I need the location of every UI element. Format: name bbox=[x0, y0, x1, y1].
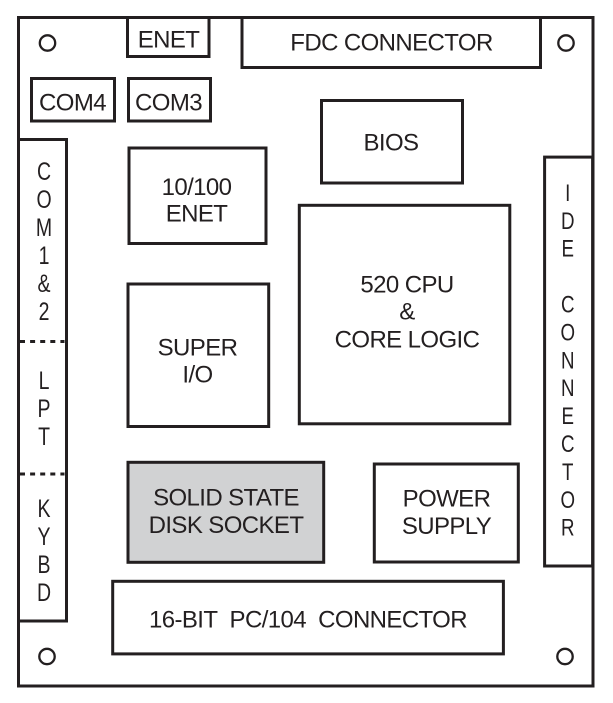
svg-text:&: & bbox=[38, 270, 51, 298]
svg-text:I/O: I/O bbox=[182, 362, 212, 389]
svg-text:DISK SOCKET: DISK SOCKET bbox=[149, 512, 305, 539]
svg-text:&: & bbox=[399, 299, 415, 326]
svg-text:SOLID STATE: SOLID STATE bbox=[153, 485, 299, 512]
svg-text:FDC CONNECTOR: FDC CONNECTOR bbox=[290, 30, 493, 57]
svg-text:N: N bbox=[561, 347, 574, 374]
svg-text:M: M bbox=[36, 214, 52, 242]
svg-text:2: 2 bbox=[39, 298, 49, 326]
svg-text:ENET: ENET bbox=[166, 201, 229, 228]
svg-text:B: B bbox=[38, 551, 51, 579]
svg-text:P: P bbox=[38, 395, 51, 423]
svg-text:R: R bbox=[561, 515, 574, 542]
svg-text:COM3: COM3 bbox=[135, 90, 202, 117]
svg-text:1: 1 bbox=[39, 242, 49, 270]
svg-text:E: E bbox=[561, 403, 573, 430]
svg-text:16-BIT PC/104 CONNECTOR: 16-BIT PC/104 CONNECTOR bbox=[149, 607, 467, 634]
svg-text:O: O bbox=[36, 186, 51, 214]
svg-text:10/100: 10/100 bbox=[162, 174, 232, 201]
svg-text:Y: Y bbox=[38, 523, 51, 551]
svg-text:CORE LOGIC: CORE LOGIC bbox=[335, 327, 480, 354]
svg-text:N: N bbox=[561, 375, 574, 402]
svg-text:SUPER: SUPER bbox=[158, 335, 238, 362]
svg-text:K: K bbox=[38, 495, 51, 523]
svg-text:I: I bbox=[565, 180, 570, 207]
svg-text:C: C bbox=[561, 291, 574, 318]
svg-text:E: E bbox=[561, 236, 573, 263]
svg-text:520 CPU: 520 CPU bbox=[360, 272, 453, 299]
svg-text:BIOS: BIOS bbox=[364, 130, 419, 157]
svg-text:T: T bbox=[38, 423, 50, 451]
svg-text:C: C bbox=[37, 158, 51, 186]
svg-text:SUPPLY: SUPPLY bbox=[402, 513, 492, 540]
svg-text:POWER: POWER bbox=[403, 486, 491, 513]
svg-text:T: T bbox=[562, 459, 573, 486]
svg-text:ENET: ENET bbox=[138, 27, 201, 54]
svg-text:O: O bbox=[560, 319, 574, 346]
svg-text:D: D bbox=[561, 208, 574, 235]
svg-text:L: L bbox=[39, 367, 49, 395]
svg-text:C: C bbox=[561, 431, 574, 458]
svg-text:COM4: COM4 bbox=[39, 90, 106, 117]
svg-text:O: O bbox=[560, 487, 574, 514]
svg-text:D: D bbox=[37, 579, 51, 607]
